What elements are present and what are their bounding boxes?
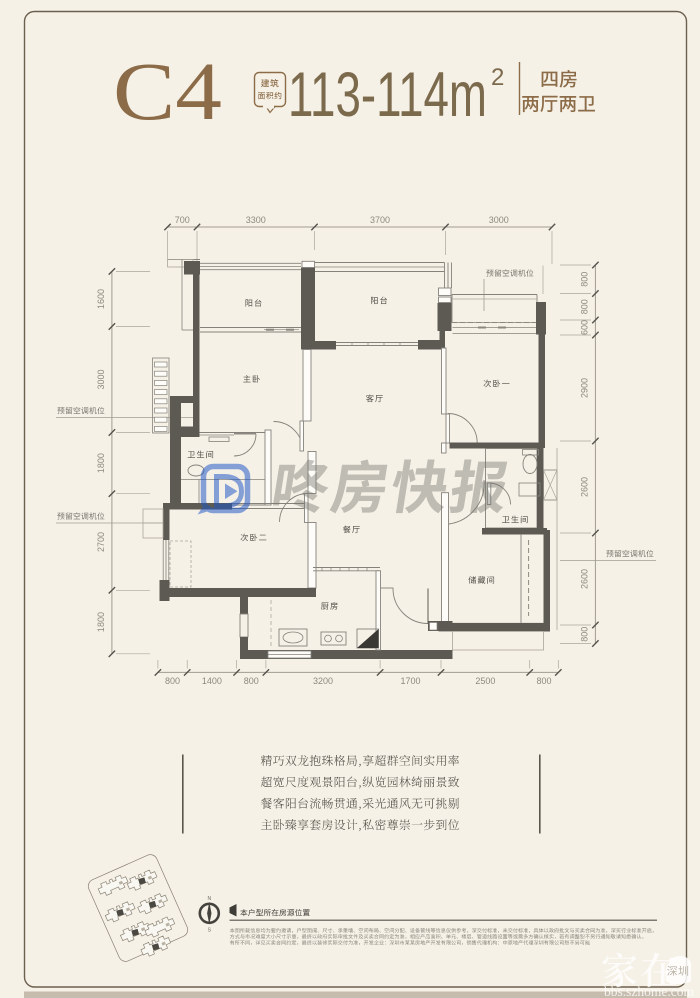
svg-text:2600: 2600 (580, 569, 590, 589)
svg-text:800: 800 (165, 676, 180, 686)
svg-text:2900: 2900 (580, 378, 590, 398)
svg-text:2700: 2700 (96, 532, 106, 552)
svg-text:2500: 2500 (475, 676, 495, 686)
svg-text:1600: 1600 (96, 289, 106, 309)
svg-text:800: 800 (536, 676, 551, 686)
svg-text:2600: 2600 (580, 477, 590, 497)
svg-text:C4: C4 (113, 45, 222, 137)
svg-text:1800: 1800 (96, 453, 106, 473)
svg-text:113-114m: 113-114m (288, 60, 487, 130)
svg-text:N: N (207, 896, 211, 902)
svg-text:1400: 1400 (202, 676, 222, 686)
svg-text:3700: 3700 (370, 215, 390, 225)
svg-text:1800: 1800 (96, 612, 106, 632)
svg-text:600: 600 (580, 320, 590, 335)
svg-text:3300: 3300 (246, 215, 266, 225)
svg-text:800: 800 (580, 299, 590, 314)
svg-text:800: 800 (244, 676, 259, 686)
svg-text:700: 700 (175, 215, 190, 225)
svg-text:800: 800 (580, 272, 590, 287)
svg-text:800: 800 (580, 627, 590, 642)
svg-text:3000: 3000 (489, 215, 509, 225)
svg-text:2: 2 (491, 64, 504, 91)
svg-text:3200: 3200 (313, 676, 333, 686)
svg-text:1700: 1700 (401, 676, 421, 686)
svg-text:bbs.szhome.com: bbs.szhome.com (604, 984, 694, 998)
svg-text:S: S (208, 928, 212, 934)
svg-text:3000: 3000 (96, 369, 106, 389)
